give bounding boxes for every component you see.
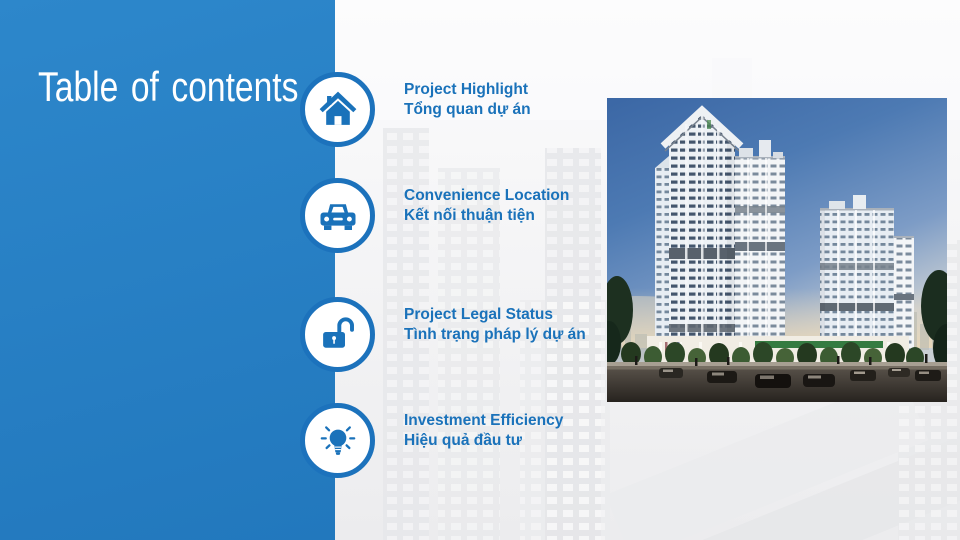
toc-label-en: Project Highlight bbox=[404, 80, 531, 100]
toc-icon-circle bbox=[300, 297, 375, 372]
toc-label-vi: Kết nối thuận tiện bbox=[404, 206, 569, 226]
toc-label-en: Project Legal Status bbox=[404, 305, 586, 325]
building-render-image bbox=[607, 98, 947, 402]
toc-label-en: Convenience Location bbox=[404, 186, 569, 206]
toc-icon-circle bbox=[300, 178, 375, 253]
toc-item-investment-efficiency[interactable]: Investment Efficiency Hiệu quả đầu tư bbox=[300, 403, 563, 478]
toc-icon-circle bbox=[300, 403, 375, 478]
toc-label-en: Investment Efficiency bbox=[404, 411, 563, 431]
unlock-icon bbox=[317, 314, 359, 356]
toc-item-project-highlight[interactable]: Project Highlight Tổng quan dự án bbox=[300, 72, 531, 147]
toc-label-vi: Hiệu quả đầu tư bbox=[404, 431, 563, 451]
toc-label-vi: Tổng quan dự án bbox=[404, 100, 531, 120]
slide: Table of contents Project Highlight Tổng… bbox=[0, 0, 960, 540]
sidebar-panel: Table of contents bbox=[0, 0, 335, 540]
bulb-icon bbox=[317, 420, 359, 462]
toc-icon-circle bbox=[300, 72, 375, 147]
toc-label-vi: Tình trạng pháp lý dự án bbox=[404, 325, 586, 345]
toc-item-convenience-location[interactable]: Convenience Location Kết nối thuận tiện bbox=[300, 178, 569, 253]
home-icon bbox=[317, 89, 359, 131]
car-icon bbox=[317, 195, 359, 237]
page-title: Table of contents bbox=[38, 66, 298, 108]
toc-item-project-legal-status[interactable]: Project Legal Status Tình trạng pháp lý … bbox=[300, 297, 586, 372]
